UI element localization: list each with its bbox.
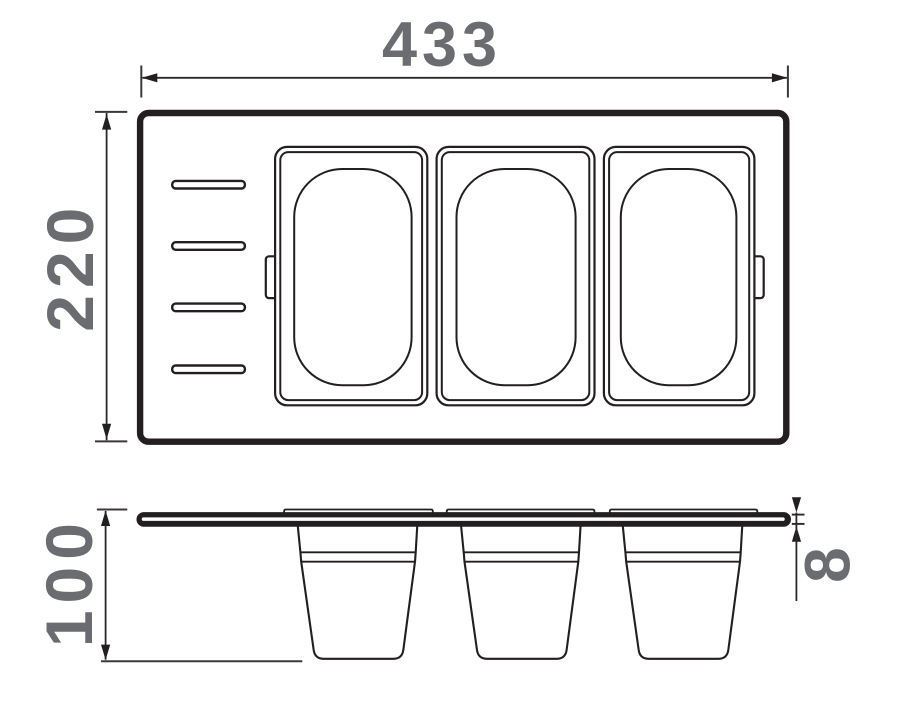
svg-text:220: 220 [33,201,107,332]
svg-text:100: 100 [32,516,106,647]
svg-text:8: 8 [792,547,864,583]
svg-text:433: 433 [382,10,502,80]
